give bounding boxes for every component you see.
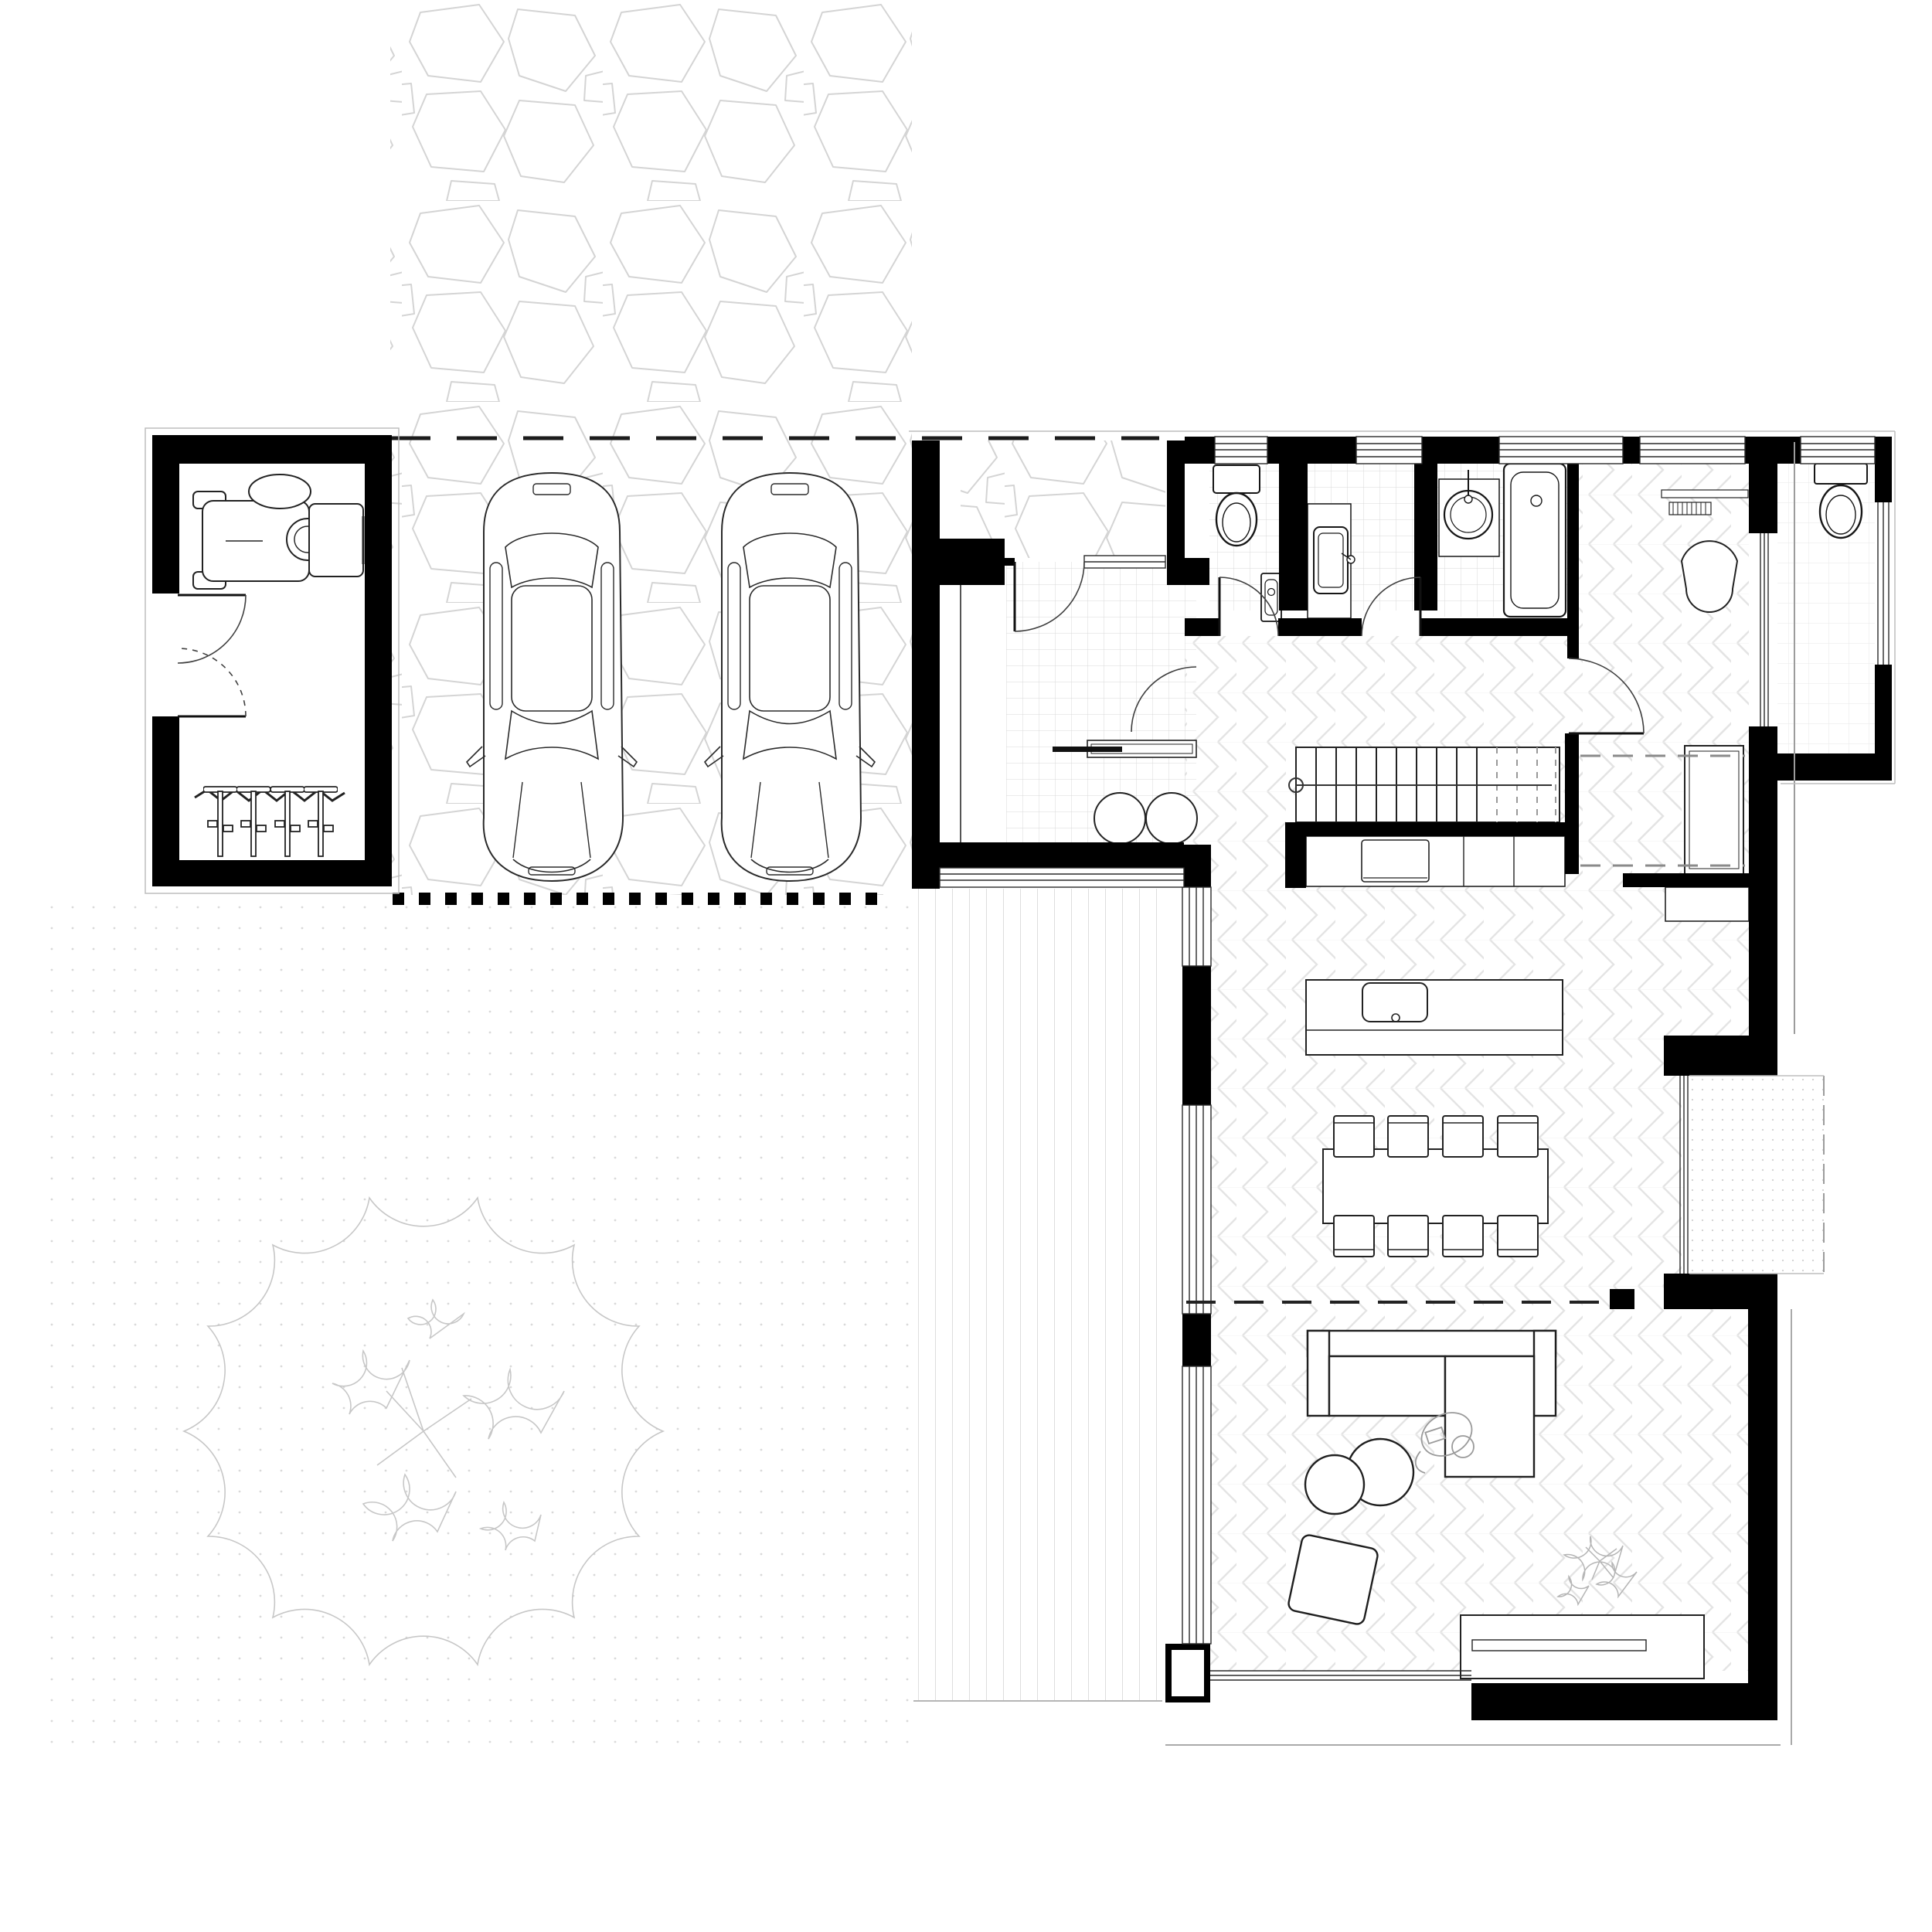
sofa-right-arm	[1534, 1331, 1556, 1416]
utility-sink	[1308, 504, 1355, 618]
floor-plan	[0, 0, 1932, 1932]
sofa-left-arm	[1308, 1331, 1329, 1416]
dining-table	[1323, 1149, 1548, 1223]
parked-car	[705, 473, 875, 881]
porch-wall-return	[940, 539, 1005, 585]
sofa-seat	[1329, 1356, 1445, 1416]
wc-toilet	[1213, 465, 1260, 546]
dining-chair	[1388, 1216, 1428, 1257]
east-gravel-terrace	[1689, 1076, 1824, 1274]
shed-wall-south	[152, 860, 392, 886]
desk-shelf	[1662, 490, 1748, 498]
lawn-dot-area	[46, 893, 912, 1747]
shed-double-door	[178, 595, 246, 716]
ride-on-mower	[193, 474, 363, 589]
shed-wall-east	[365, 435, 392, 886]
dining-chair	[1334, 1116, 1374, 1157]
sofa-back	[1308, 1331, 1556, 1356]
kitchen-island	[1306, 980, 1563, 1055]
parked-car	[467, 473, 637, 881]
dining-chair	[1334, 1216, 1374, 1257]
bathtub	[1504, 464, 1566, 617]
entry-pier-return	[1167, 558, 1209, 585]
kitchen-wall-counter	[1306, 836, 1565, 886]
dining-chair	[1443, 1116, 1483, 1157]
bicycle	[203, 787, 237, 856]
study-chair	[1682, 541, 1737, 612]
entry-deck-window	[940, 868, 1184, 887]
wardrobe	[1685, 746, 1743, 874]
coat-rack-rail	[1053, 747, 1122, 752]
round-stool	[1094, 793, 1145, 844]
island-sink	[1362, 983, 1427, 1022]
bath-vanity	[1439, 470, 1499, 556]
porch-wall	[912, 440, 940, 889]
ensuite-east-window	[1878, 502, 1889, 665]
dining-chair	[1498, 1216, 1538, 1257]
floor-plan-canvas	[0, 0, 1932, 1932]
sofa-chaise	[1445, 1356, 1534, 1477]
coffee-table-small	[1305, 1455, 1364, 1514]
hall-cabinet	[1665, 887, 1749, 921]
cooktop	[1362, 840, 1429, 882]
garden-shed	[145, 428, 399, 893]
dining-chair	[1388, 1116, 1428, 1157]
study-glazed-partition	[1760, 533, 1768, 726]
dining-chair	[1443, 1216, 1483, 1257]
shed-wall-west-upper	[152, 435, 179, 594]
radiator	[1669, 502, 1711, 515]
timber-deck	[913, 889, 1162, 1701]
entry-pier	[1167, 440, 1185, 558]
floor-cushion	[1287, 1534, 1379, 1626]
shed-wall-north	[152, 435, 392, 464]
bike-rack	[195, 787, 345, 856]
front-door-sidelight	[1084, 556, 1165, 568]
bicycle	[236, 787, 270, 856]
dining-chair	[1498, 1116, 1538, 1157]
tv-unit	[1472, 1640, 1646, 1651]
south-window	[1210, 1671, 1471, 1680]
round-stool	[1146, 793, 1197, 844]
